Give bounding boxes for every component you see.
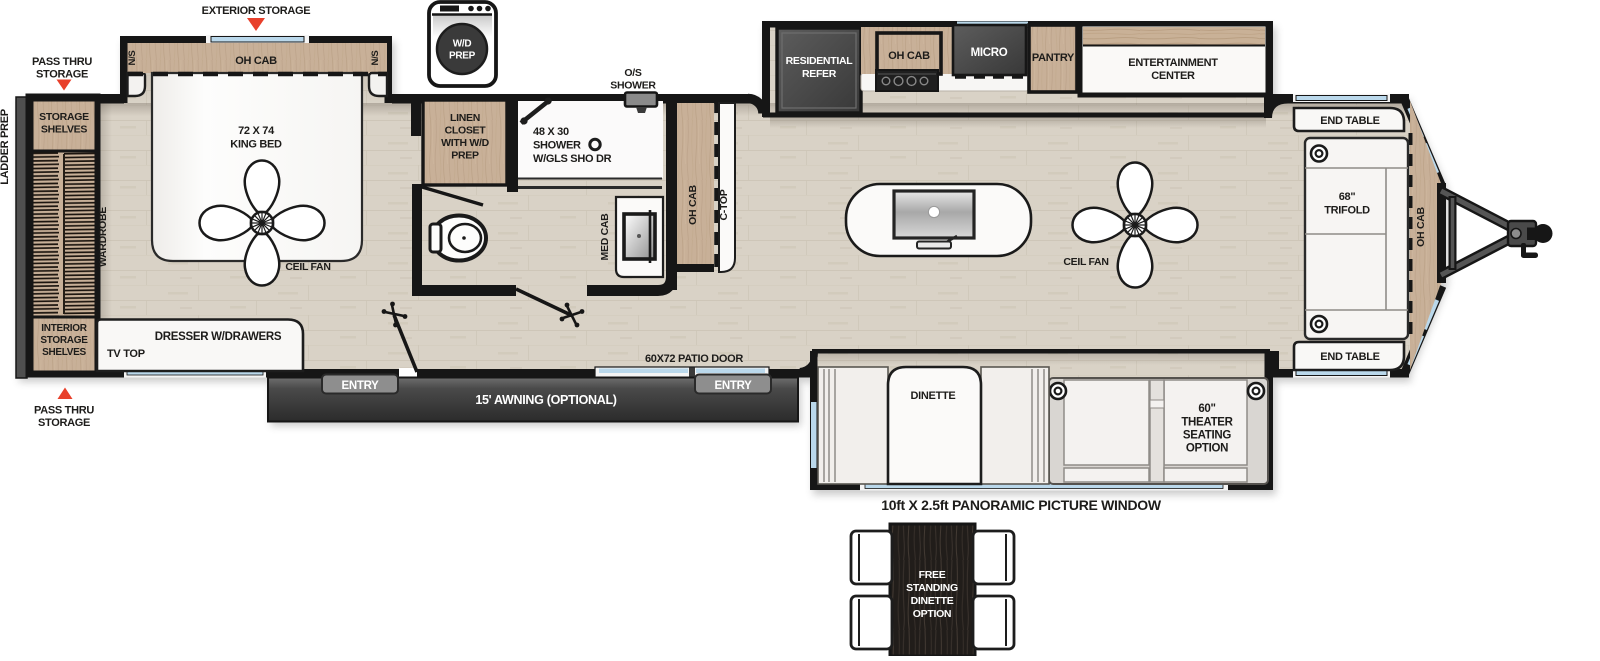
svg-text:TRIFOLD: TRIFOLD bbox=[1324, 205, 1370, 217]
svg-text:48 X 30: 48 X 30 bbox=[533, 126, 569, 138]
svg-text:OH CAB: OH CAB bbox=[888, 50, 930, 62]
svg-text:PASS THRU: PASS THRU bbox=[34, 405, 94, 417]
svg-text:OPTION: OPTION bbox=[1186, 443, 1228, 455]
svg-text:60": 60" bbox=[1198, 403, 1215, 415]
svg-text:RESIDENTIAL: RESIDENTIAL bbox=[786, 55, 854, 67]
svg-text:STORAGE: STORAGE bbox=[38, 417, 90, 429]
svg-text:SHOWER: SHOWER bbox=[533, 140, 581, 152]
svg-text:SHELVES: SHELVES bbox=[41, 124, 87, 136]
svg-text:72 X 74: 72 X 74 bbox=[238, 125, 275, 137]
svg-text:N/S: N/S bbox=[127, 51, 138, 66]
svg-text:PREP: PREP bbox=[449, 51, 476, 62]
svg-text:C-TOP: C-TOP bbox=[718, 189, 730, 220]
svg-text:ENTERTAINMENT: ENTERTAINMENT bbox=[1128, 57, 1218, 69]
svg-text:OH CAB: OH CAB bbox=[235, 55, 277, 67]
svg-text:OPTION: OPTION bbox=[913, 608, 951, 620]
svg-text:WITH W/D: WITH W/D bbox=[441, 137, 489, 149]
svg-text:LADDER PREP: LADDER PREP bbox=[0, 109, 11, 185]
svg-text:CEIL FAN: CEIL FAN bbox=[1063, 256, 1108, 268]
svg-text:END TABLE: END TABLE bbox=[1320, 351, 1379, 363]
svg-text:WARDROBE: WARDROBE bbox=[97, 207, 109, 267]
svg-text:FREE: FREE bbox=[919, 569, 946, 581]
svg-text:STORAGE: STORAGE bbox=[40, 335, 88, 346]
svg-text:CLOSET: CLOSET bbox=[445, 125, 487, 137]
svg-text:STANDING: STANDING bbox=[906, 582, 958, 594]
svg-text:W/D: W/D bbox=[453, 39, 472, 50]
svg-text:LINEN: LINEN bbox=[450, 112, 480, 124]
svg-text:ENTRY: ENTRY bbox=[714, 380, 752, 392]
svg-text:N/S: N/S bbox=[370, 51, 381, 66]
svg-text:OH CAB: OH CAB bbox=[1415, 206, 1427, 246]
svg-text:MED CAB: MED CAB bbox=[599, 213, 611, 261]
svg-text:DINETTE: DINETTE bbox=[911, 390, 956, 402]
svg-text:W/GLS SHO DR: W/GLS SHO DR bbox=[533, 153, 612, 165]
svg-text:INTERIOR: INTERIOR bbox=[41, 323, 87, 334]
svg-text:60X72 PATIO DOOR: 60X72 PATIO DOOR bbox=[645, 353, 743, 365]
svg-text:15' AWNING (OPTIONAL): 15' AWNING (OPTIONAL) bbox=[475, 393, 616, 407]
svg-text:PASS THRU: PASS THRU bbox=[32, 56, 92, 68]
svg-text:STORAGE: STORAGE bbox=[39, 111, 89, 123]
svg-text:SHELVES: SHELVES bbox=[42, 347, 86, 358]
svg-text:CENTER: CENTER bbox=[1151, 70, 1195, 82]
svg-text:CEIL FAN: CEIL FAN bbox=[285, 261, 330, 273]
svg-text:KING BED: KING BED bbox=[230, 139, 282, 151]
svg-text:THEATER: THEATER bbox=[1181, 417, 1233, 429]
svg-text:TV TOP: TV TOP bbox=[107, 348, 145, 360]
svg-text:SEATING: SEATING bbox=[1183, 430, 1232, 442]
svg-text:10ft X 2.5ft PANORAMIC PICTURE: 10ft X 2.5ft PANORAMIC PICTURE WINDOW bbox=[881, 497, 1162, 513]
svg-text:REFER: REFER bbox=[802, 68, 837, 80]
svg-text:MICRO: MICRO bbox=[971, 47, 1008, 59]
svg-text:PANTRY: PANTRY bbox=[1032, 52, 1075, 64]
svg-text:EXTERIOR STORAGE: EXTERIOR STORAGE bbox=[202, 5, 311, 17]
svg-text:STORAGE: STORAGE bbox=[36, 69, 88, 81]
svg-text:OH CAB: OH CAB bbox=[687, 184, 699, 224]
svg-text:SHOWER: SHOWER bbox=[610, 80, 656, 92]
svg-text:DRESSER W/DRAWERS: DRESSER W/DRAWERS bbox=[155, 331, 282, 343]
svg-text:O/S: O/S bbox=[624, 67, 641, 79]
svg-text:PREP: PREP bbox=[451, 150, 479, 162]
svg-text:68": 68" bbox=[1339, 191, 1356, 203]
svg-text:END TABLE: END TABLE bbox=[1320, 115, 1379, 127]
svg-text:ENTRY: ENTRY bbox=[341, 380, 379, 392]
svg-text:DINETTE: DINETTE bbox=[911, 595, 954, 607]
